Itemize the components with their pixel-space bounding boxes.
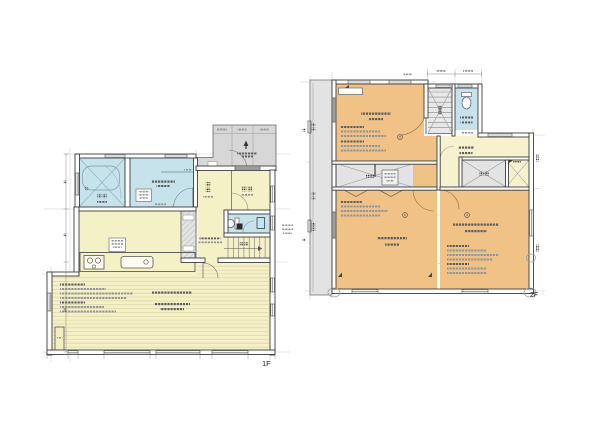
svg-text:1F: 1F (262, 359, 271, 368)
svg-text:2F: 2F (530, 292, 538, 299)
